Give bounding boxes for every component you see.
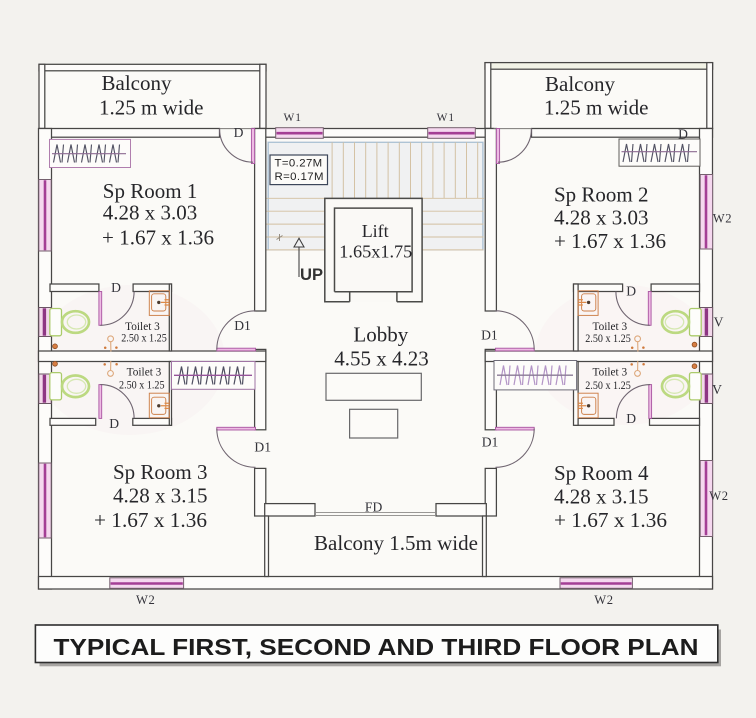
- svg-text:4.28 x 3.15: 4.28 x 3.15: [554, 485, 649, 509]
- svg-text:Sp Room 4: Sp Room 4: [554, 461, 649, 485]
- svg-text:Sp Room 2: Sp Room 2: [554, 182, 649, 206]
- svg-text:+ 1.67 x 1.36: + 1.67 x 1.36: [554, 229, 666, 253]
- svg-text:T=0.27M: T=0.27M: [275, 157, 323, 169]
- svg-text:R=0.17M: R=0.17M: [275, 171, 324, 183]
- svg-text:D1: D1: [234, 318, 251, 333]
- svg-text:Lobby: Lobby: [353, 323, 408, 347]
- svg-text:1.65x1.75: 1.65x1.75: [339, 241, 412, 261]
- svg-text:4.28 x 3.03: 4.28 x 3.03: [103, 200, 198, 224]
- svg-text:2.50 x 1.25: 2.50 x 1.25: [119, 380, 165, 392]
- svg-text:D: D: [626, 283, 636, 298]
- svg-text:Toilet 3: Toilet 3: [592, 367, 627, 379]
- svg-text:W2: W2: [136, 593, 155, 607]
- svg-text:W2: W2: [713, 212, 732, 226]
- svg-text:+ 1.67 x 1.36: + 1.67 x 1.36: [94, 508, 207, 532]
- svg-text:D: D: [109, 416, 119, 431]
- svg-text:Balcony 1.5m wide: Balcony 1.5m wide: [314, 531, 478, 555]
- svg-text:W1: W1: [437, 112, 455, 124]
- svg-text:Toilet 3: Toilet 3: [127, 367, 162, 379]
- svg-text:W1: W1: [283, 112, 301, 124]
- svg-text:2.50 x 1.25: 2.50 x 1.25: [585, 333, 631, 345]
- svg-text:2.50 x 1.25: 2.50 x 1.25: [585, 380, 631, 392]
- svg-text:2.50 x 1.25: 2.50 x 1.25: [121, 333, 167, 345]
- svg-text:D1: D1: [254, 439, 271, 454]
- svg-text:1.25 m wide: 1.25 m wide: [544, 96, 648, 120]
- svg-text:W2: W2: [709, 489, 728, 503]
- svg-text:4.28 x 3.03: 4.28 x 3.03: [554, 206, 649, 230]
- svg-text:1.25 m wide: 1.25 m wide: [99, 95, 203, 119]
- svg-text:D: D: [234, 125, 244, 140]
- svg-text:4.55 x 4.23: 4.55 x 4.23: [334, 346, 429, 370]
- svg-text:Lift: Lift: [362, 221, 389, 241]
- svg-text:+ 1.67 x 1.36: + 1.67 x 1.36: [102, 225, 214, 249]
- svg-text:Balcony: Balcony: [102, 71, 172, 95]
- svg-text:D1: D1: [482, 435, 499, 450]
- svg-text:TYPICAL FIRST, SECOND AND THIR: TYPICAL FIRST, SECOND AND THIRD FLOOR PL…: [54, 634, 699, 660]
- svg-text:D1: D1: [481, 327, 498, 342]
- svg-text:D: D: [111, 280, 121, 295]
- svg-text:D: D: [678, 127, 688, 142]
- svg-text:V: V: [712, 382, 722, 397]
- svg-text:Balcony: Balcony: [545, 72, 615, 96]
- svg-text:Toilet 3: Toilet 3: [592, 321, 627, 333]
- svg-text:V: V: [714, 315, 724, 330]
- svg-text:Sp Room 3: Sp Room 3: [113, 460, 208, 484]
- svg-text:4.28 x 3.15: 4.28 x 3.15: [113, 483, 208, 507]
- svg-text:+ 1.67 x 1.36: + 1.67 x 1.36: [554, 508, 667, 532]
- svg-text:W2: W2: [594, 593, 613, 607]
- svg-text:D: D: [626, 411, 636, 426]
- svg-text:Toilet 3: Toilet 3: [125, 321, 160, 333]
- svg-text:FD: FD: [365, 500, 383, 515]
- svg-text:UP: UP: [300, 265, 323, 284]
- svg-text:Sp Room 1: Sp Room 1: [103, 179, 198, 203]
